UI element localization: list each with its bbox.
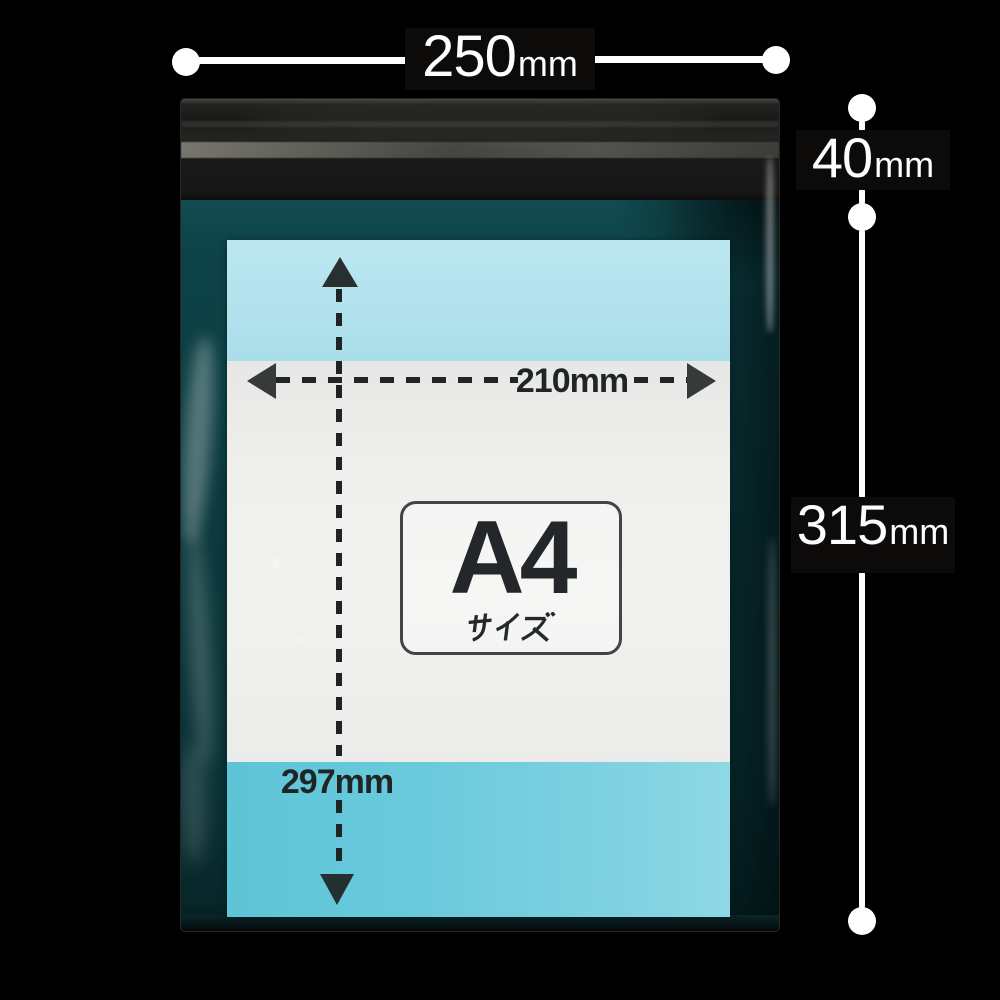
- height-dashed-line: [336, 289, 342, 756]
- paper-width-label: 210mm: [507, 364, 637, 398]
- width-dashed-line: [634, 377, 688, 383]
- width-dimension-label: 250mm: [405, 28, 595, 90]
- product-photo: 250mm 40mm 315mm 297mm: [0, 0, 1000, 1000]
- flap-value: 40: [812, 130, 872, 186]
- body-unit: mm: [889, 514, 949, 550]
- arrow-up-icon: [322, 257, 358, 287]
- arrow-right-icon: [687, 363, 716, 399]
- dimension-endpoint-dot: [848, 203, 876, 231]
- width-value: 250: [422, 28, 516, 86]
- body-value: 315: [797, 497, 887, 553]
- bag-flap: [181, 99, 779, 200]
- width-unit: mm: [518, 46, 578, 82]
- dimension-endpoint-dot: [848, 94, 876, 122]
- paper-width-value: 210: [516, 364, 570, 398]
- paper-height-value: 297: [281, 765, 335, 799]
- bag-bottom-seam: [181, 915, 779, 931]
- a4-size-name: A4: [450, 514, 573, 603]
- paper-height-unit: mm: [335, 765, 393, 799]
- adhesive-strip: [181, 142, 779, 158]
- width-dimension-line: [186, 57, 408, 64]
- flap-dimension-label: 40mm: [796, 130, 950, 190]
- paper-width-unit: mm: [570, 364, 628, 398]
- size-katakana-glyphs: [465, 612, 557, 642]
- body-dimension-line: [859, 229, 865, 499]
- flap-unit: mm: [874, 147, 934, 183]
- dimension-endpoint-dot: [848, 907, 876, 935]
- paper-height-label: 297mm: [272, 765, 402, 799]
- insert-top-cyan-band: [227, 240, 730, 361]
- opp-bag: 297mm 210mm A4 サイズ: [181, 99, 779, 931]
- flap-dimension-line: [859, 188, 865, 205]
- flap-fold-line: [181, 121, 779, 127]
- body-dimension-label: 315mm: [791, 497, 955, 573]
- height-dashed-line: [336, 800, 342, 871]
- arrow-left-icon: [247, 363, 276, 399]
- a4-size-badge: A4 サイズ: [400, 501, 622, 655]
- width-dimension-line: [592, 56, 776, 63]
- arrow-down-icon: [320, 874, 354, 905]
- width-dashed-line: [276, 377, 518, 383]
- body-dimension-line: [859, 571, 865, 909]
